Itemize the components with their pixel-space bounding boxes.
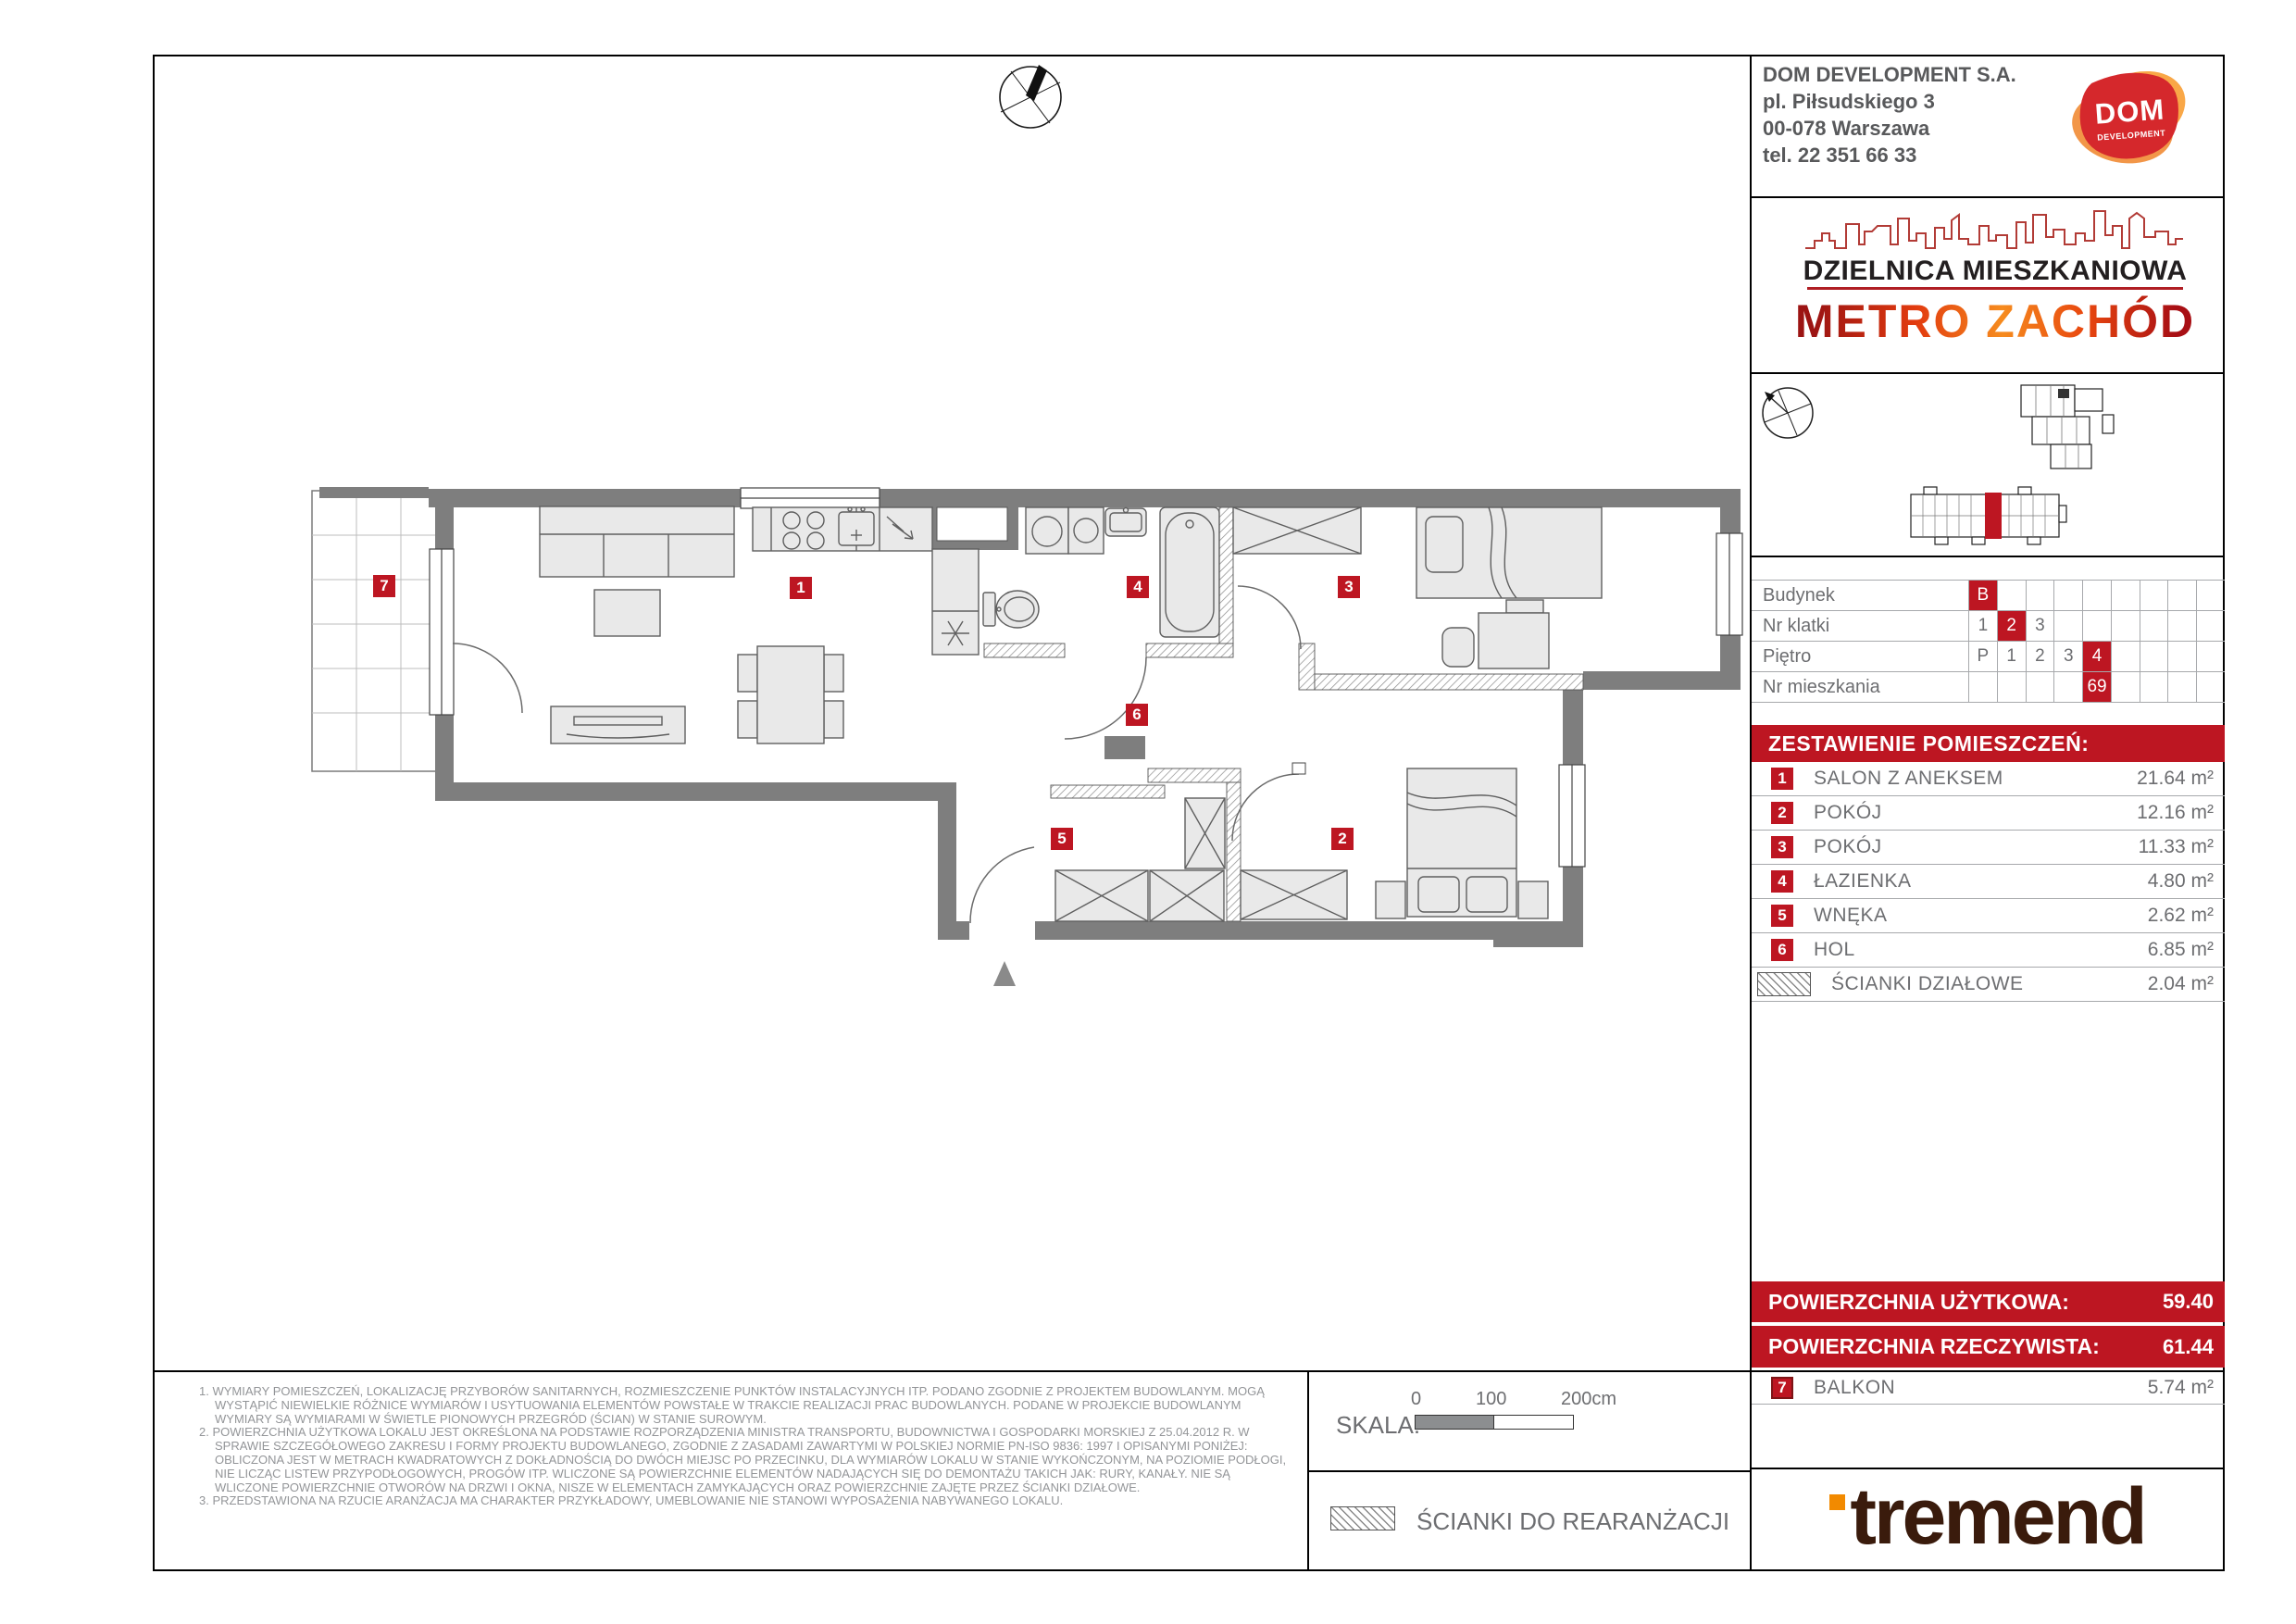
room-row-5: 5 WNĘKA 2.62 m² xyxy=(1752,899,2225,933)
unit-table-cell xyxy=(2026,581,2054,610)
marker-2-label: 2 xyxy=(1338,830,1346,847)
room-area: 2.04 m² xyxy=(2148,973,2214,995)
room-number-badge: 3 xyxy=(1771,836,1793,858)
unit-table-cell xyxy=(2167,642,2196,671)
room-row-3: 3 POKÓJ 11.33 m² xyxy=(1752,831,2225,865)
compass-icon xyxy=(1000,65,1061,128)
unit-table-cell xyxy=(2111,611,2140,641)
project-logo: DZIELNICA MIESZKANIOWA METRO ZACHÓD xyxy=(1750,199,2225,352)
unit-table-cell: 3 xyxy=(2053,642,2082,671)
shaft xyxy=(937,507,1007,541)
unit-table-cell xyxy=(2026,672,2054,702)
room-name: POKÓJ xyxy=(1814,802,1882,824)
usable-area-value: 59.40 xyxy=(2163,1290,2214,1314)
marker-5-label: 5 xyxy=(1057,830,1066,847)
partition-swatch xyxy=(1757,972,1811,996)
marker-5: 5 xyxy=(1051,828,1073,850)
floorplan-sheet: 1 2 3 4 5 6 7 DOM DEVELOPMENT S.A. pl. P… xyxy=(0,0,2296,1624)
unit-table-cell xyxy=(2053,581,2082,610)
room-row-4: 4 ŁAZIENKA 4.80 m² xyxy=(1752,865,2225,899)
room-schedule-header: ZESTAWIENIE POMIESZCZEŃ: xyxy=(1752,725,2225,762)
room-area: 11.33 m² xyxy=(2139,836,2214,858)
unit-table-cell xyxy=(2196,611,2225,641)
unit-row-label: Nr klatki xyxy=(1752,611,1968,641)
rearrangement-label: ŚCIANKI DO REARANŻACJI xyxy=(1416,1507,1729,1536)
room-number-badge: 5 xyxy=(1771,905,1793,927)
bathroom-sink-icon xyxy=(1105,508,1146,537)
marker-4: 4 xyxy=(1127,576,1149,598)
developer-address-2: 00-078 Warszawa xyxy=(1763,115,2016,142)
room-number-badge: 6 xyxy=(1771,939,1793,961)
unit-table-cell: 2 xyxy=(1997,611,2026,641)
scale-tick-0: 0 xyxy=(1411,1389,1421,1410)
unit-table-cell: 3 xyxy=(2026,611,2054,641)
scale-bar-empty xyxy=(1494,1415,1574,1430)
toilet-icon xyxy=(983,591,1039,628)
balcony-name: BALKON xyxy=(1814,1377,1895,1399)
developer-name: DOM DEVELOPMENT S.A. xyxy=(1763,61,2016,88)
room-row-1: 1 SALON Z ANEKSEM 21.64 m² xyxy=(1752,762,2225,796)
unit-row-cells: 123 xyxy=(1968,611,2225,641)
balcony-number-badge: 7 xyxy=(1771,1377,1793,1399)
tremend-logo-text: tremend xyxy=(1850,1474,2144,1559)
unit-row-cells: 69 xyxy=(1968,672,2225,702)
developer-phone: tel. 22 351 66 33 xyxy=(1763,142,2016,169)
footnotes: 1. WYMIARY POMIESZCZEŃ, LOKALIZACJĘ PRZY… xyxy=(199,1385,1296,1508)
unit-row-staircase: Nr klatki 123 xyxy=(1752,611,2225,642)
marker-6-label: 6 xyxy=(1132,706,1141,723)
actual-area-value: 61.44 xyxy=(2163,1335,2214,1359)
room-number-badge: 4 xyxy=(1771,870,1793,893)
actual-area-label: POWIERZCHNIA RZECZYWISTA: xyxy=(1768,1334,2100,1359)
unit-table-cell xyxy=(2140,581,2168,610)
unit-table-cell xyxy=(2111,642,2140,671)
room-name: ŁAZIENKA xyxy=(1814,870,1912,893)
unit-row-cells: P1234 xyxy=(1968,642,2225,671)
dining-table xyxy=(738,646,843,743)
wardrobe-room2 xyxy=(1241,870,1347,919)
footnote-3: 3. PRZEDSTAWIONA NA RZUCIE ARANŻACJA MA … xyxy=(199,1494,1296,1508)
unit-row-apartment-number: Nr mieszkania 69 xyxy=(1752,672,2225,703)
washing-machine-icon xyxy=(1026,507,1104,554)
coffee-table xyxy=(594,590,660,636)
unit-table-cell: P xyxy=(1968,642,1997,671)
marker-7: 7 xyxy=(373,575,395,597)
room-number-badge: 1 xyxy=(1771,768,1793,790)
unit-table-cell xyxy=(2196,672,2225,702)
unit-row-label: Budynek xyxy=(1752,581,1968,610)
room-row-2: 2 POKÓJ 12.16 m² xyxy=(1752,796,2225,831)
unit-table-cell xyxy=(2140,642,2168,671)
room-row-partitions: ŚCIANKI DZIAŁOWE 2.04 m² xyxy=(1752,968,2225,1002)
bathtub-icon xyxy=(1160,507,1219,637)
marker-1: 1 xyxy=(790,577,812,599)
footnote-2: 2. POWIERZCHNIA UŻYTKOWA LOKALU JEST OKR… xyxy=(199,1426,1296,1494)
wardrobes-alcove xyxy=(1055,798,1225,921)
dom-logo-text: DOM xyxy=(2094,94,2166,131)
usable-area-label: POWIERZCHNIA UŻYTKOWA: xyxy=(1768,1290,2069,1315)
unit-table-cell xyxy=(2053,672,2082,702)
skyline-icon xyxy=(1805,211,2183,248)
north-indicator-icon xyxy=(1753,376,1827,450)
unit-table-cell: 4 xyxy=(2082,642,2111,671)
usable-area-bar: POWIERZCHNIA UŻYTKOWA: 59.40 xyxy=(1752,1281,2225,1322)
developer-info: DOM DEVELOPMENT S.A. pl. Piłsudskiego 3 … xyxy=(1763,61,2016,169)
scale-tick-100: 100 xyxy=(1476,1389,1506,1410)
unit-table-cell xyxy=(2140,672,2168,702)
unit-table-cell: 2 xyxy=(2026,642,2054,671)
unit-table-cell xyxy=(2053,611,2082,641)
unit-table-cell: B xyxy=(1968,581,1997,610)
site-plan-highlighted xyxy=(1907,483,2069,554)
unit-table-cell xyxy=(2167,672,2196,702)
unit-table-cell xyxy=(2167,581,2196,610)
unit-table-cell xyxy=(1997,672,2026,702)
scale-tick-200: 200cm xyxy=(1561,1389,1616,1410)
marker-1-label: 1 xyxy=(796,579,805,596)
unit-table-cell xyxy=(2111,672,2140,702)
balcony xyxy=(312,487,447,771)
room-area: 4.80 m² xyxy=(2148,870,2214,893)
room-name: ŚCIANKI DZIAŁOWE xyxy=(1831,973,2024,995)
room-name: WNĘKA xyxy=(1814,905,1888,927)
bed-room2 xyxy=(1407,768,1516,917)
room-name: SALON Z ANEKSEM xyxy=(1814,768,2003,790)
marker-6: 6 xyxy=(1126,704,1148,726)
marker-3: 3 xyxy=(1338,576,1360,598)
tremend-logo: tremend xyxy=(1750,1474,2225,1567)
unit-table-cell xyxy=(2196,642,2225,671)
unit-table-cell: 1 xyxy=(1968,611,1997,641)
balcony-area: 5.74 m² xyxy=(2148,1377,2214,1399)
tremend-dot-icon xyxy=(1829,1494,1845,1510)
unit-row-cells: B xyxy=(1968,581,2225,610)
unit-info-table: Budynek B Nr klatki 123 Piętro P1234 Nr … xyxy=(1752,580,2225,703)
unit-table-cell xyxy=(2167,611,2196,641)
bed-room3 xyxy=(1416,507,1602,598)
actual-area-bar: POWIERZCHNIA RZECZYWISTA: 61.44 xyxy=(1752,1326,2225,1368)
unit-row-label: Piętro xyxy=(1752,642,1968,671)
marker-2: 2 xyxy=(1331,828,1354,850)
unit-table-cell: 69 xyxy=(2082,672,2111,702)
unit-table-cell xyxy=(2082,581,2111,610)
site-plan-small xyxy=(2014,380,2120,474)
room-name: POKÓJ xyxy=(1814,836,1882,858)
rearrangement-swatch xyxy=(1330,1506,1395,1530)
wardrobe-room3 xyxy=(1233,507,1361,554)
balcony-row: 7 BALKON 5.74 m² xyxy=(1752,1372,2225,1405)
unit-row-building: Budynek B xyxy=(1752,581,2225,611)
unit-table-cell xyxy=(2111,581,2140,610)
unit-table-cell xyxy=(2140,611,2168,641)
unit-table-cell xyxy=(1968,672,1997,702)
room-area: 2.62 m² xyxy=(2148,905,2214,927)
unit-row-label: Nr mieszkania xyxy=(1752,672,1968,702)
marker-7-label: 7 xyxy=(380,577,388,594)
room-name: HOL xyxy=(1814,939,1855,961)
unit-row-floor: Piętro P1234 xyxy=(1752,642,2225,672)
marker-4-label: 4 xyxy=(1133,578,1142,595)
dom-development-logo: DOM DEVELOPMENT xyxy=(2057,59,2205,180)
room-number-badge: 2 xyxy=(1771,802,1793,824)
project-tagline: DZIELNICA MIESZKANIOWA xyxy=(1803,256,2188,286)
unit-table-cell xyxy=(2082,611,2111,641)
entrance-arrow-icon xyxy=(993,961,1016,986)
unit-table-cell xyxy=(2196,581,2225,610)
footnote-1: 1. WYMIARY POMIESZCZEŃ, LOKALIZACJĘ PRZY… xyxy=(199,1385,1296,1426)
unit-table-cell: 1 xyxy=(1997,642,2026,671)
room-area: 21.64 m² xyxy=(2137,768,2214,790)
kitchen-sink-icon xyxy=(839,507,874,545)
marker-3-label: 3 xyxy=(1344,578,1353,595)
scale-label: SKALA: xyxy=(1336,1411,1420,1440)
room-row-6: 6 HOL 6.85 m² xyxy=(1752,933,2225,968)
desk-room3 xyxy=(1442,600,1549,668)
room-area: 12.16 m² xyxy=(2137,802,2214,824)
scale-bar-filled xyxy=(1415,1415,1494,1430)
unit-table-cell xyxy=(1997,581,2026,610)
room-area: 6.85 m² xyxy=(2148,939,2214,961)
project-name: METRO ZACHÓD xyxy=(1795,295,2195,347)
room-schedule-title: ZESTAWIENIE POMIESZCZEŃ: xyxy=(1768,731,2089,756)
fridge-cabinet xyxy=(932,549,979,655)
developer-address-1: pl. Piłsudskiego 3 xyxy=(1763,88,2016,115)
sofa xyxy=(540,506,734,577)
tv-cabinet xyxy=(551,706,685,743)
